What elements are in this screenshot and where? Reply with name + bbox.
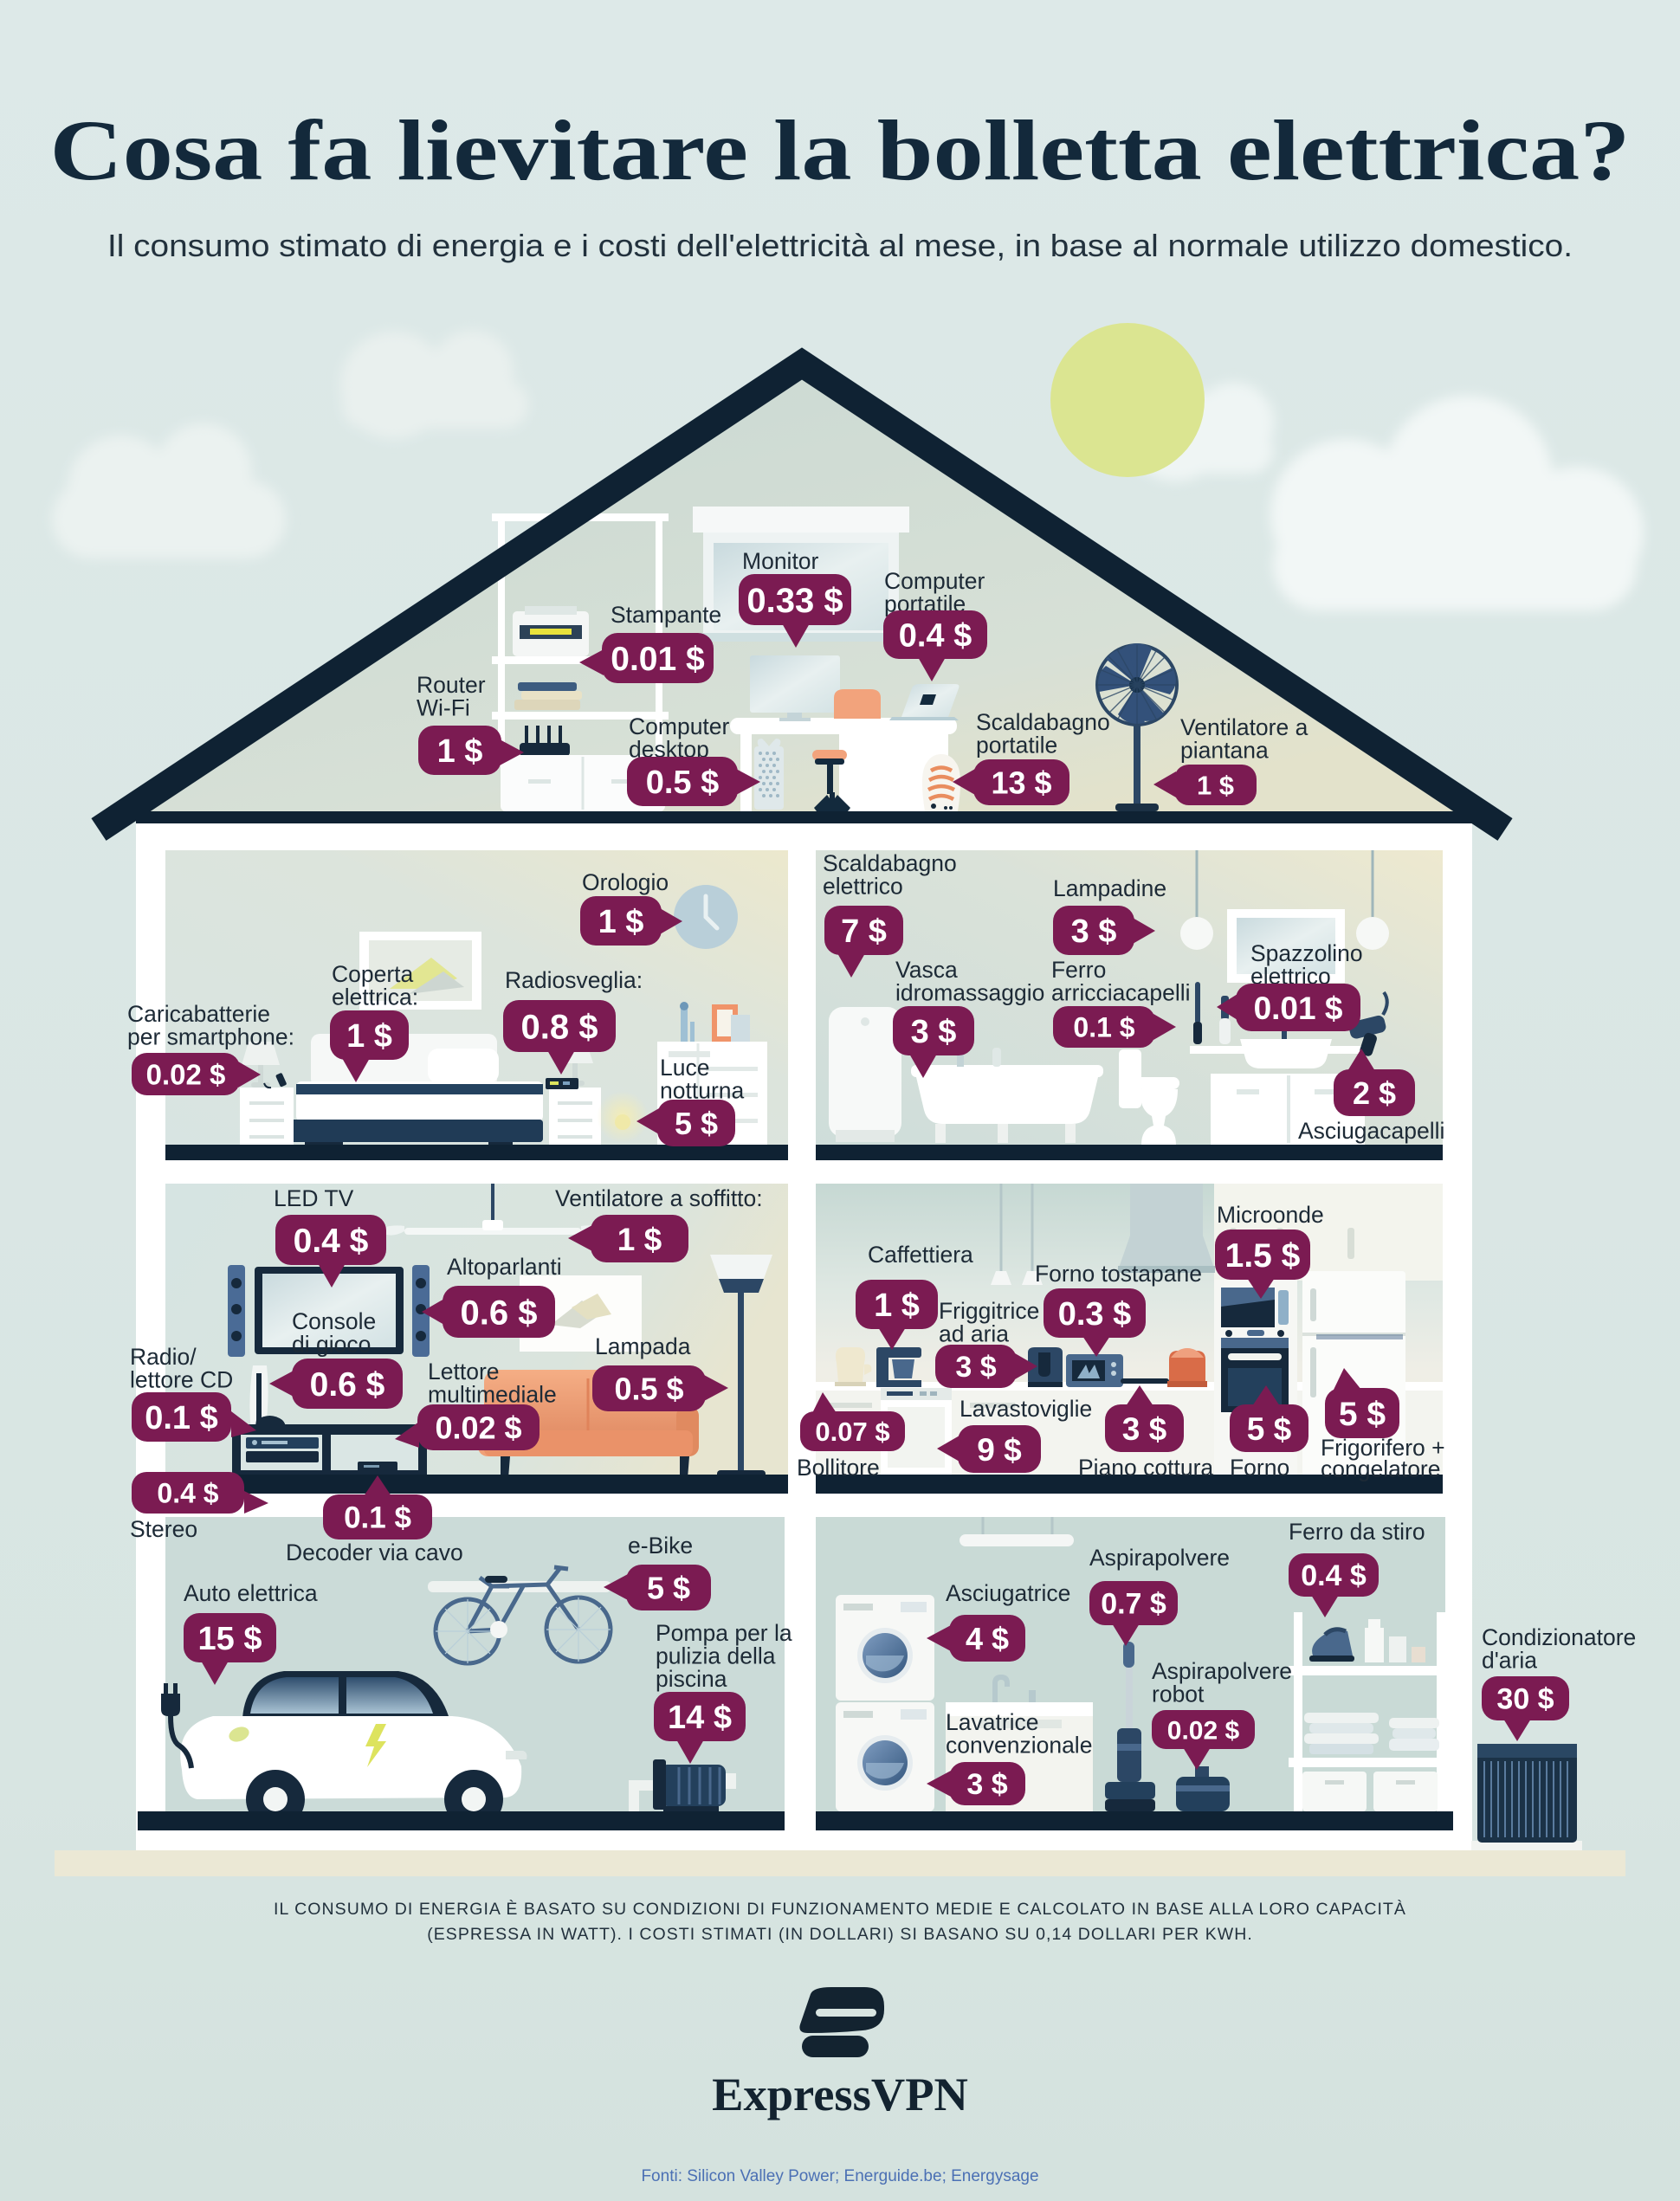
svg-text:0.1 $: 0.1 $ — [145, 1400, 218, 1436]
svg-text:Ferro: Ferro — [1051, 957, 1106, 983]
svg-text:0.01 $: 0.01 $ — [1254, 991, 1343, 1026]
svg-text:ad aria: ad aria — [939, 1321, 1009, 1347]
svg-text:Asciugatrice: Asciugatrice — [946, 1580, 1070, 1606]
svg-text:3 $: 3 $ — [1122, 1411, 1167, 1447]
svg-text:5 $: 5 $ — [675, 1106, 718, 1141]
svg-text:1.5 $: 1.5 $ — [1225, 1237, 1301, 1275]
svg-text:Ventilatore a soffitto:: Ventilatore a soffitto: — [555, 1185, 763, 1211]
svg-text:7 $: 7 $ — [841, 913, 887, 950]
svg-text:Radio/: Radio/ — [130, 1344, 197, 1370]
svg-text:15 $: 15 $ — [198, 1621, 262, 1657]
svg-text:Asciugacapelli: Asciugacapelli — [1298, 1118, 1444, 1144]
svg-text:4 $: 4 $ — [966, 1621, 1009, 1656]
svg-text:ExpressVPN: ExpressVPN — [712, 2068, 968, 2120]
svg-text:Aspirapolvere: Aspirapolvere — [1089, 1545, 1230, 1571]
svg-text:congelatore: congelatore — [1321, 1456, 1441, 1482]
svg-text:arricciacapelli: arricciacapelli — [1051, 980, 1191, 1006]
svg-text:lettore CD: lettore CD — [130, 1367, 233, 1393]
svg-text:idromassaggio: idromassaggio — [895, 980, 1044, 1006]
svg-text:Lampadine: Lampadine — [1053, 875, 1166, 901]
svg-text:Microonde: Microonde — [1217, 1202, 1324, 1228]
svg-text:3 $: 3 $ — [1071, 913, 1117, 950]
svg-text:0.01 $: 0.01 $ — [611, 641, 705, 678]
svg-text:Router: Router — [417, 672, 486, 698]
svg-text:0.33 $: 0.33 $ — [746, 582, 843, 620]
svg-text:piantana: piantana — [1180, 738, 1269, 764]
svg-text:multimediale: multimediale — [428, 1382, 557, 1408]
svg-text:0.02 $: 0.02 $ — [146, 1058, 226, 1090]
svg-text:Cosa fa lievitare la bolletta: Cosa fa lievitare la bolletta elettrica? — [50, 102, 1631, 198]
svg-text:1 $: 1 $ — [1197, 771, 1234, 801]
svg-text:Condizionatore: Condizionatore — [1482, 1624, 1636, 1650]
svg-text:Monitor: Monitor — [742, 548, 819, 574]
svg-text:5 $: 5 $ — [1247, 1411, 1292, 1447]
svg-text:1 $: 1 $ — [437, 733, 483, 770]
svg-text:30 $: 30 $ — [1496, 1683, 1554, 1716]
svg-text:Lavastoviglie: Lavastoviglie — [960, 1396, 1092, 1422]
svg-text:0.6 $: 0.6 $ — [461, 1294, 538, 1332]
svg-text:Coperta: Coperta — [332, 961, 414, 987]
svg-text:Caricabatterie: Caricabatterie — [127, 1001, 270, 1027]
svg-text:Il consumo stimato di energia: Il consumo stimato di energia e i costi … — [107, 228, 1573, 263]
svg-text:0.4 $: 0.4 $ — [899, 618, 972, 655]
svg-text:0.1 $: 0.1 $ — [1073, 1012, 1134, 1043]
svg-text:5 $: 5 $ — [647, 1570, 690, 1605]
svg-text:0.02 $: 0.02 $ — [435, 1410, 521, 1445]
svg-text:Fonti: Silicon Valley Power; E: Fonti: Silicon Valley Power; Energuide.b… — [641, 2167, 1038, 2185]
svg-text:(ESPRESSA IN WATT). I COSTI ST: (ESPRESSA IN WATT). I COSTI STIMATI (IN … — [427, 1925, 1253, 1944]
svg-text:0.02 $: 0.02 $ — [1167, 1716, 1240, 1745]
svg-text:Orologio: Orologio — [582, 869, 669, 895]
svg-text:Aspirapolvere: Aspirapolvere — [1152, 1658, 1292, 1684]
svg-text:3 $: 3 $ — [911, 1014, 957, 1050]
svg-text:0.5 $: 0.5 $ — [614, 1371, 683, 1406]
svg-text:elettrico: elettrico — [823, 874, 903, 900]
svg-text:0.3 $: 0.3 $ — [1058, 1296, 1132, 1333]
svg-text:0.6 $: 0.6 $ — [310, 1366, 385, 1404]
svg-text:0.4 $: 0.4 $ — [157, 1478, 218, 1509]
svg-text:portatile: portatile — [976, 733, 1057, 758]
svg-text:Piano cottura: Piano cottura — [1078, 1455, 1213, 1481]
svg-text:di gioco: di gioco — [292, 1332, 371, 1358]
svg-text:Spazzolino: Spazzolino — [1250, 940, 1363, 966]
svg-text:robot: robot — [1152, 1681, 1205, 1707]
svg-text:0.07 $: 0.07 $ — [815, 1417, 889, 1447]
svg-text:Friggitrice: Friggitrice — [939, 1298, 1039, 1324]
svg-text:1 $: 1 $ — [346, 1018, 392, 1055]
svg-text:Scaldabagno: Scaldabagno — [976, 709, 1110, 735]
svg-text:Console: Console — [292, 1308, 376, 1334]
svg-text:pulizia della: pulizia della — [656, 1643, 776, 1669]
svg-text:piscina: piscina — [656, 1666, 727, 1692]
svg-text:convenzionale: convenzionale — [946, 1733, 1092, 1759]
svg-text:d'aria: d'aria — [1482, 1648, 1537, 1674]
svg-text:Computer: Computer — [884, 568, 985, 594]
svg-text:Pompa per la: Pompa per la — [656, 1620, 792, 1646]
svg-text:IL CONSUMO DI ENERGIA È BASATO: IL CONSUMO DI ENERGIA È BASATO SU CONDIZ… — [274, 1899, 1406, 1919]
svg-text:Radiosveglia:: Radiosveglia: — [505, 967, 643, 993]
svg-text:3 $: 3 $ — [955, 1351, 996, 1384]
svg-text:Caffettiera: Caffettiera — [868, 1242, 973, 1268]
svg-text:Lavatrice: Lavatrice — [946, 1709, 1039, 1735]
svg-text:0.4 $: 0.4 $ — [1301, 1559, 1367, 1592]
svg-text:5 $: 5 $ — [1339, 1396, 1386, 1433]
svg-text:0.4 $: 0.4 $ — [294, 1223, 369, 1260]
svg-text:Altoparlanti: Altoparlanti — [447, 1254, 562, 1280]
svg-text:Stereo: Stereo — [130, 1516, 197, 1542]
svg-text:1 $: 1 $ — [598, 904, 644, 940]
svg-text:Computer: Computer — [629, 713, 730, 739]
svg-text:1 $: 1 $ — [617, 1222, 662, 1257]
svg-text:Ferro da stiro: Ferro da stiro — [1289, 1519, 1425, 1545]
svg-text:14 $: 14 $ — [668, 1700, 732, 1736]
svg-text:per smartphone:: per smartphone: — [127, 1024, 294, 1050]
svg-text:1 $: 1 $ — [874, 1288, 920, 1324]
svg-text:Lettore: Lettore — [428, 1359, 500, 1384]
svg-text:Auto elettrica: Auto elettrica — [184, 1580, 318, 1606]
svg-text:elettrica:: elettrica: — [332, 984, 418, 1010]
svg-text:Scaldabagno: Scaldabagno — [823, 850, 957, 876]
svg-text:Lampada: Lampada — [595, 1333, 691, 1359]
svg-text:Decoder via cavo: Decoder via cavo — [286, 1539, 463, 1565]
svg-text:Vasca: Vasca — [895, 957, 958, 983]
svg-text:13 $: 13 $ — [991, 765, 1051, 800]
svg-text:9 $: 9 $ — [977, 1432, 1022, 1468]
svg-text:Bollitore: Bollitore — [797, 1455, 880, 1481]
svg-text:0.8 $: 0.8 $ — [521, 1008, 598, 1046]
svg-text:Luce: Luce — [660, 1055, 709, 1081]
svg-text:0.7 $: 0.7 $ — [1101, 1588, 1166, 1621]
svg-text:2 $: 2 $ — [1353, 1075, 1396, 1111]
svg-text:Ventilatore a: Ventilatore a — [1180, 714, 1308, 740]
svg-text:LED TV: LED TV — [274, 1185, 354, 1211]
svg-text:0.1 $: 0.1 $ — [344, 1501, 411, 1535]
svg-text:Wi-Fi: Wi-Fi — [417, 695, 470, 721]
svg-text:Forno tostapane: Forno tostapane — [1035, 1261, 1202, 1287]
svg-text:Stampante: Stampante — [611, 602, 721, 628]
svg-text:0.5 $: 0.5 $ — [646, 765, 720, 801]
svg-text:e-Bike: e-Bike — [628, 1533, 693, 1559]
svg-text:3 $: 3 $ — [966, 1768, 1007, 1801]
svg-text:Forno: Forno — [1230, 1455, 1289, 1481]
